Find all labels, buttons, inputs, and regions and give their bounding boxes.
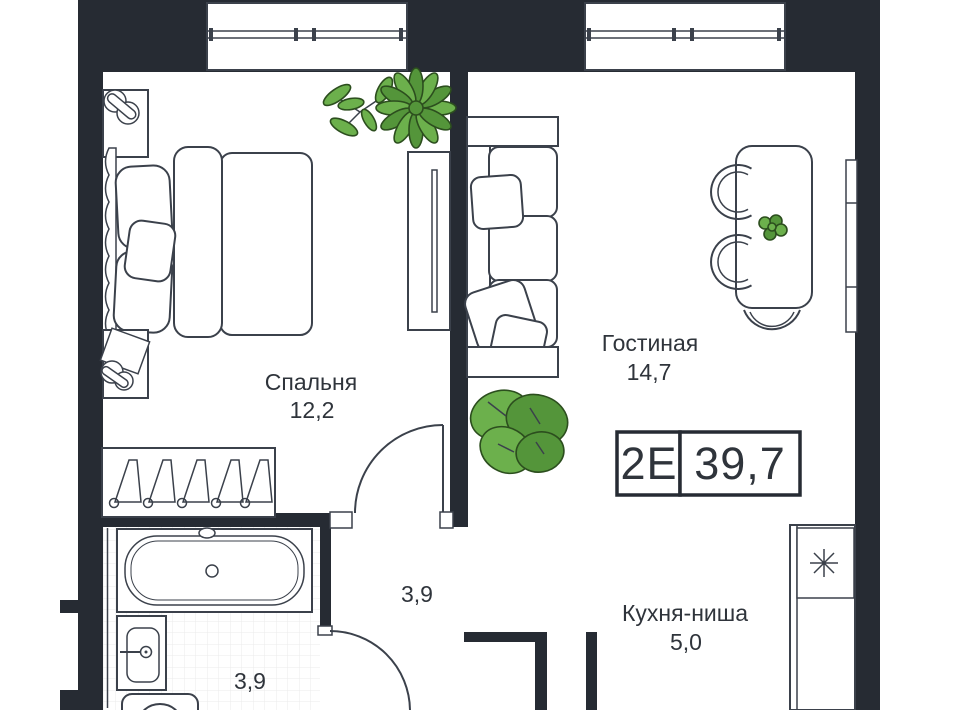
door-jamb [330, 512, 352, 528]
sofa-side-table [467, 117, 558, 146]
wall-pier-upper [60, 600, 78, 613]
closet [408, 152, 450, 330]
nightstand-top [103, 90, 148, 157]
bed-pillow [123, 219, 177, 283]
living-label: Гостиная [602, 330, 699, 356]
door-jamb [440, 512, 453, 528]
hallway-area: 3,9 [401, 581, 433, 607]
living-area: 14,7 [627, 359, 672, 385]
wardrobe-hangers [102, 448, 275, 517]
unit-type: 2Е [620, 438, 677, 489]
bathroom-sink [117, 616, 166, 690]
bathtub [117, 528, 312, 612]
kitchen-counter [790, 525, 855, 710]
wall-pier-lower [60, 690, 78, 710]
sofa-pillow [470, 174, 524, 229]
window-living [585, 3, 785, 70]
wall-right [855, 72, 880, 710]
bed-duvet [174, 147, 222, 337]
wall-left [78, 72, 103, 710]
bedroom-label: Спальня [265, 369, 357, 395]
window-side [846, 160, 857, 332]
unit-total-area: 39,7 [694, 438, 786, 489]
wall-entry-left [535, 632, 547, 710]
dining-table [736, 146, 812, 308]
bathroom-area: 3,9 [234, 668, 266, 694]
nightstand-bottom [100, 328, 149, 398]
bed-mattress [220, 153, 312, 335]
sofa [462, 117, 558, 377]
unit-badge: 2Е 39,7 [617, 432, 800, 495]
kitchen-area: 5,0 [670, 629, 702, 655]
bedroom-area: 12,2 [290, 397, 335, 423]
door-jamb [318, 626, 332, 635]
wall-entry-right [586, 632, 597, 710]
floor-plan: Спальня 12,2 Гостиная 14,7 Кухня-ниша 5,… [0, 0, 960, 710]
sofa-side-table [467, 347, 558, 377]
wall-hall-bottom [464, 632, 547, 642]
wall-bathroom-right [320, 527, 331, 627]
window-bedroom [207, 3, 407, 70]
toilet [122, 694, 198, 710]
kitchen-label: Кухня-ниша [622, 600, 748, 626]
kitchen-sink [797, 528, 854, 598]
bed [106, 147, 313, 337]
